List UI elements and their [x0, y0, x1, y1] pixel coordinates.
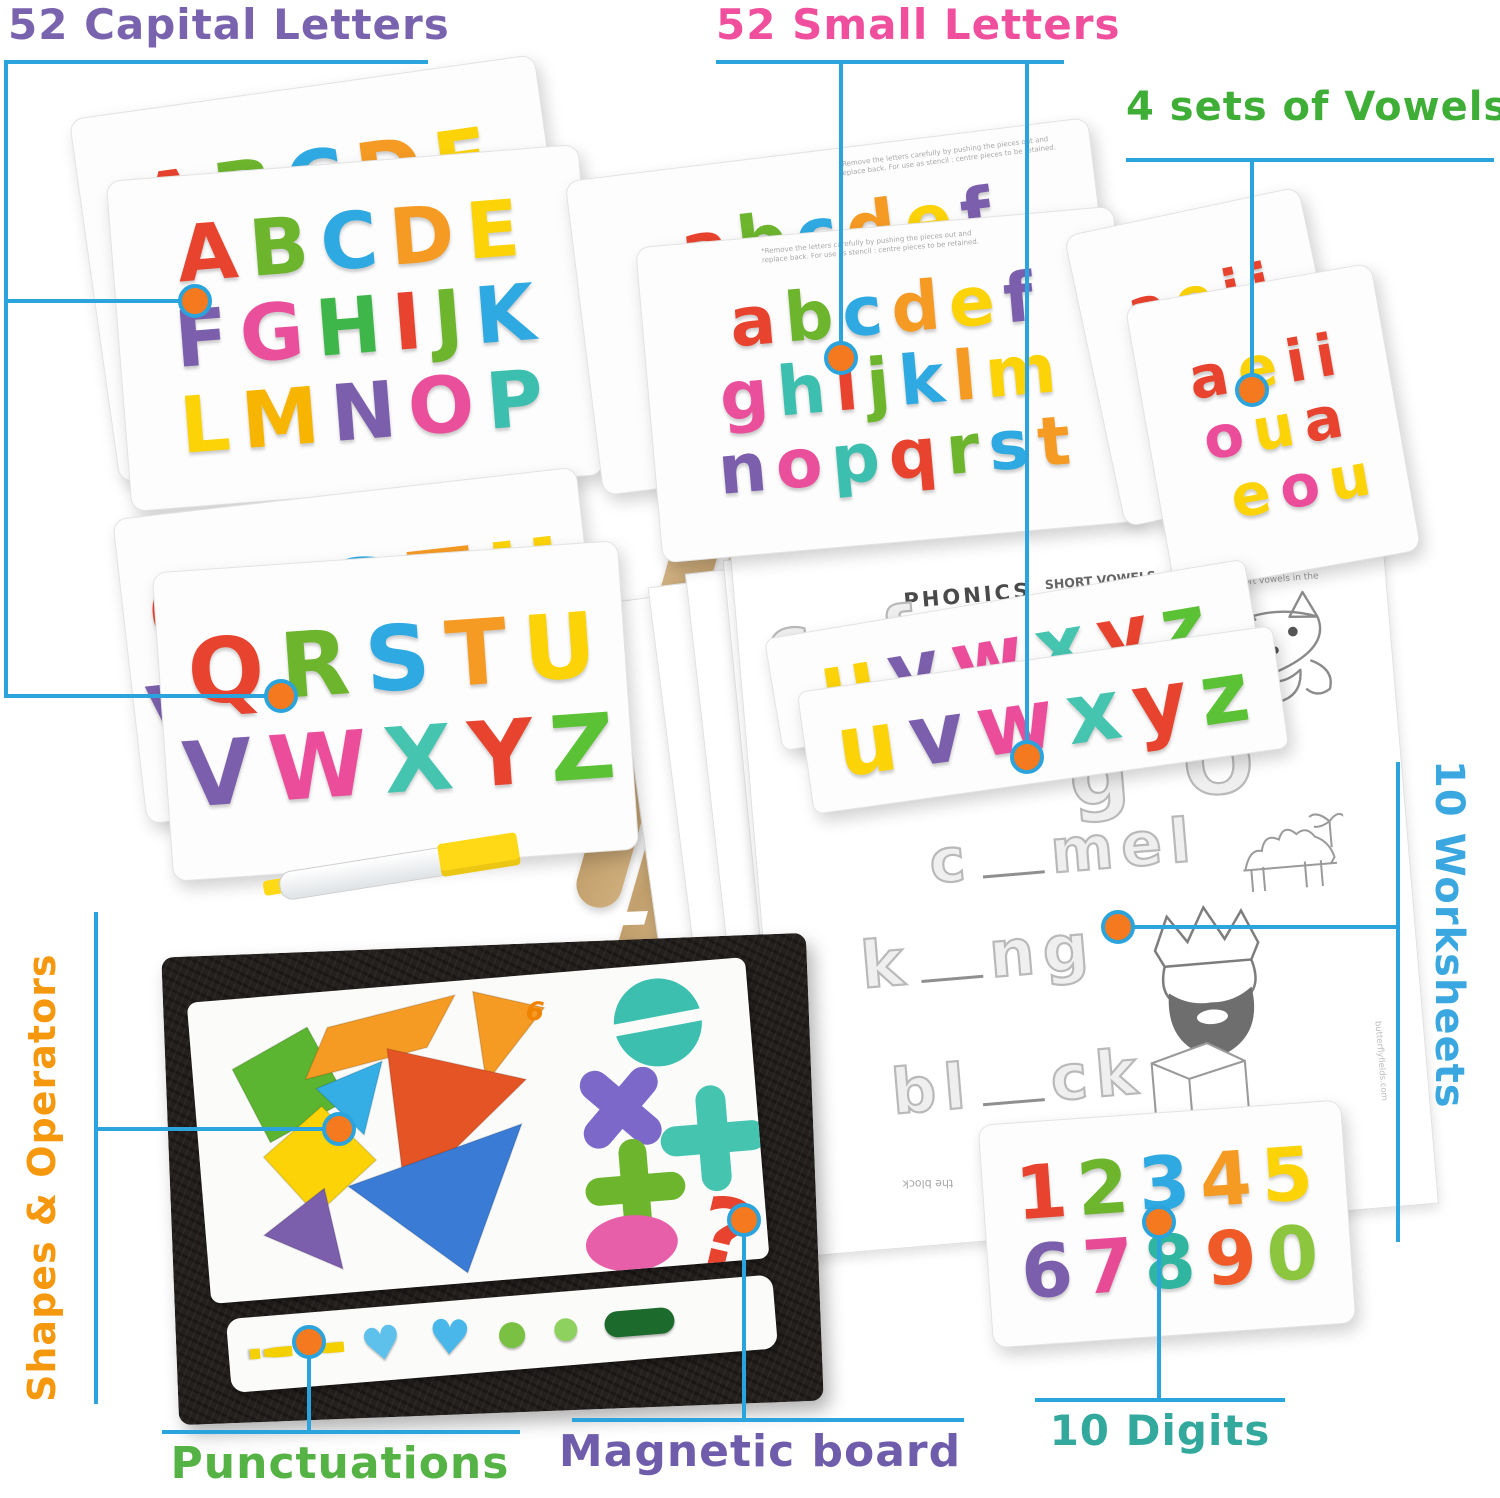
vowel-card-front: aeiiouaeou [1125, 263, 1422, 594]
callout-dot-punctuations [292, 1325, 326, 1359]
letter-tile: B [246, 206, 312, 292]
exercise-word-camel: cmel [927, 805, 1201, 897]
label-digits: 10 Digits [1032, 1406, 1288, 1455]
letter-tile: I [390, 282, 425, 365]
magnetic-board: ?6 !!♥♥●● [161, 933, 823, 1425]
letter-tile: N [328, 370, 399, 456]
callout-line [742, 1230, 746, 1420]
card-brand-logo: 6 [525, 996, 546, 1028]
letter-tile: y [1127, 656, 1193, 750]
letter-tile: h [774, 355, 828, 430]
letter-tile: i [1310, 324, 1340, 387]
letter-tile: 0 [1264, 1215, 1321, 1295]
letter-tile: e [1226, 462, 1275, 528]
divide-circle [607, 975, 709, 1070]
label-capital-letters: 52 Capital Letters [8, 0, 428, 49]
letter-tile: f [1001, 264, 1037, 337]
letter-tile: U [520, 599, 599, 697]
callout-line [162, 1430, 520, 1434]
letter-tile: G [237, 292, 307, 378]
qrstu-board-front: QRSTUVWXYZ [152, 540, 639, 882]
callout-dot-capital-g [178, 284, 212, 318]
punctuation-dash [604, 1307, 676, 1339]
callout-dot-shapes [322, 1112, 356, 1146]
punctuation-piece: ● [551, 1312, 580, 1344]
callout-dot-small-w [1010, 740, 1044, 774]
product-annotation-image: PH PH PH PH PHONICS SHORT VOWELS - a, e,… [0, 0, 1500, 1498]
letter-tile: q [886, 418, 941, 493]
pink-oval [584, 1212, 680, 1275]
letter-tile: n [715, 433, 769, 508]
label-punctuations: Punctuations [150, 1438, 530, 1489]
exercise-word-king: kng [858, 910, 1099, 1003]
letter-tile: a [1298, 386, 1347, 452]
board-fine-print: *Remove the letters carefully by pushing… [838, 133, 1064, 178]
letter-tile: z [1194, 648, 1255, 741]
callout-line [572, 1418, 964, 1422]
small-letters-board-front: *Remove the letters carefully by pushing… [635, 206, 1141, 564]
letter-tile: c [839, 277, 885, 351]
label-vowels: 4 sets of Vowels [1126, 84, 1494, 130]
letter-tile: b [782, 281, 837, 356]
letter-tile: H [313, 286, 384, 372]
letter-tile: C [317, 200, 380, 285]
letter-tile: S [362, 611, 433, 709]
letter-tile: 7 [1080, 1227, 1137, 1307]
punctuation-piece: ♥ [357, 1317, 406, 1370]
letter-tile: i [1281, 329, 1311, 392]
letter-tile: o [773, 428, 826, 503]
letter-tile: 6 [1019, 1232, 1076, 1312]
letter-tile: K [472, 273, 539, 359]
callout-dot-worksheets [1101, 910, 1135, 944]
callout-line [839, 60, 843, 358]
letter-tile: o [1275, 453, 1325, 519]
exercise-word-block: blck [889, 1035, 1148, 1129]
callout-line [4, 694, 280, 698]
letter-tile: P [483, 358, 546, 443]
label-magnetic-board: Magnetic board [556, 1426, 964, 1477]
letter-tile: V [180, 725, 256, 823]
letter-tile: J [431, 279, 466, 362]
callout-dot-vowels [1235, 373, 1269, 407]
letter-tile: j [864, 349, 893, 421]
letter-tile: X [380, 711, 456, 809]
letter-tile: D [387, 194, 458, 280]
letter-tile: A [174, 211, 241, 297]
letter-tile: u [1324, 445, 1375, 512]
missing-vowel-blank [979, 1054, 1045, 1107]
letter-tile: r [943, 414, 983, 487]
worksheet-footer-url: butterflyfields.com [1372, 1021, 1389, 1102]
callout-dot-digits [1142, 1205, 1176, 1239]
letter-tile: t [1035, 406, 1074, 479]
callout-line [4, 60, 8, 696]
letter-tile: 4 [1197, 1140, 1254, 1220]
missing-vowel-blank [917, 929, 983, 983]
letter-tile: o [1199, 404, 1249, 470]
missing-vowel-blank [979, 827, 1045, 878]
letter-tile: M [239, 376, 323, 463]
callout-line [4, 299, 194, 303]
callout-line [1120, 925, 1400, 929]
callout-dot-capital-q [264, 679, 298, 713]
callout-line [94, 912, 98, 1404]
letter-tile: p [828, 423, 883, 498]
letter-tile: E [463, 189, 522, 274]
callout-line [307, 1348, 311, 1432]
label-worksheets: 10 Worksheets [1426, 760, 1472, 1250]
camel-illustration [1232, 799, 1349, 900]
letter-tile: Q [185, 623, 268, 722]
callout-line [1157, 1230, 1161, 1400]
punctuation-piece: ♥ [428, 1314, 472, 1363]
capital-letters-board-front: ABCDEFGHIJKLMNOP [106, 144, 605, 512]
letter-tile: d [888, 272, 943, 347]
letter-tile: m [982, 335, 1059, 412]
label-shapes-operators: Shapes & Operators [20, 922, 64, 1402]
callout-line [1025, 60, 1029, 756]
callout-line [1126, 158, 1494, 162]
callout-line [716, 60, 1064, 64]
flipped-sheet-text: the block [902, 1177, 953, 1191]
letter-tile: u [831, 697, 902, 792]
stick-notch [617, 911, 648, 925]
plus-sign-teal [673, 1097, 755, 1179]
letter-tile: k [896, 344, 947, 418]
letter-tile: a [727, 286, 779, 360]
callout-dot-small-i [824, 341, 858, 375]
multiply-sign [573, 1060, 669, 1156]
letter-tile: a [1184, 343, 1233, 409]
callout-line [94, 1127, 340, 1131]
callout-line [4, 60, 428, 64]
letter-tile: 9 [1203, 1219, 1260, 1299]
letter-tile: 5 [1259, 1136, 1316, 1216]
letter-tile: 2 [1075, 1149, 1132, 1229]
letter-tile: 1 [1013, 1153, 1070, 1233]
callout-line [1396, 762, 1400, 1242]
callout-dot-magnetic [727, 1203, 761, 1237]
label-small-letters: 52 Small Letters [716, 0, 1064, 49]
letter-tile: Y [466, 706, 538, 804]
letter-tile: Z [547, 700, 619, 798]
letter-tile: v [904, 688, 970, 782]
letter-tile: O [405, 364, 477, 450]
letter-tile: W [265, 717, 371, 817]
letter-tile: L [177, 383, 233, 468]
letter-tile: T [443, 606, 511, 704]
letter-tile: e [946, 267, 998, 341]
letter-tile: l [950, 342, 979, 414]
callout-line [1250, 158, 1254, 390]
letter-tile: x [1060, 666, 1126, 760]
letter-tile: g [717, 360, 772, 435]
board-fine-print: *Remove the letters carefully by pushing… [761, 228, 987, 266]
punctuation-piece: ● [496, 1315, 528, 1351]
